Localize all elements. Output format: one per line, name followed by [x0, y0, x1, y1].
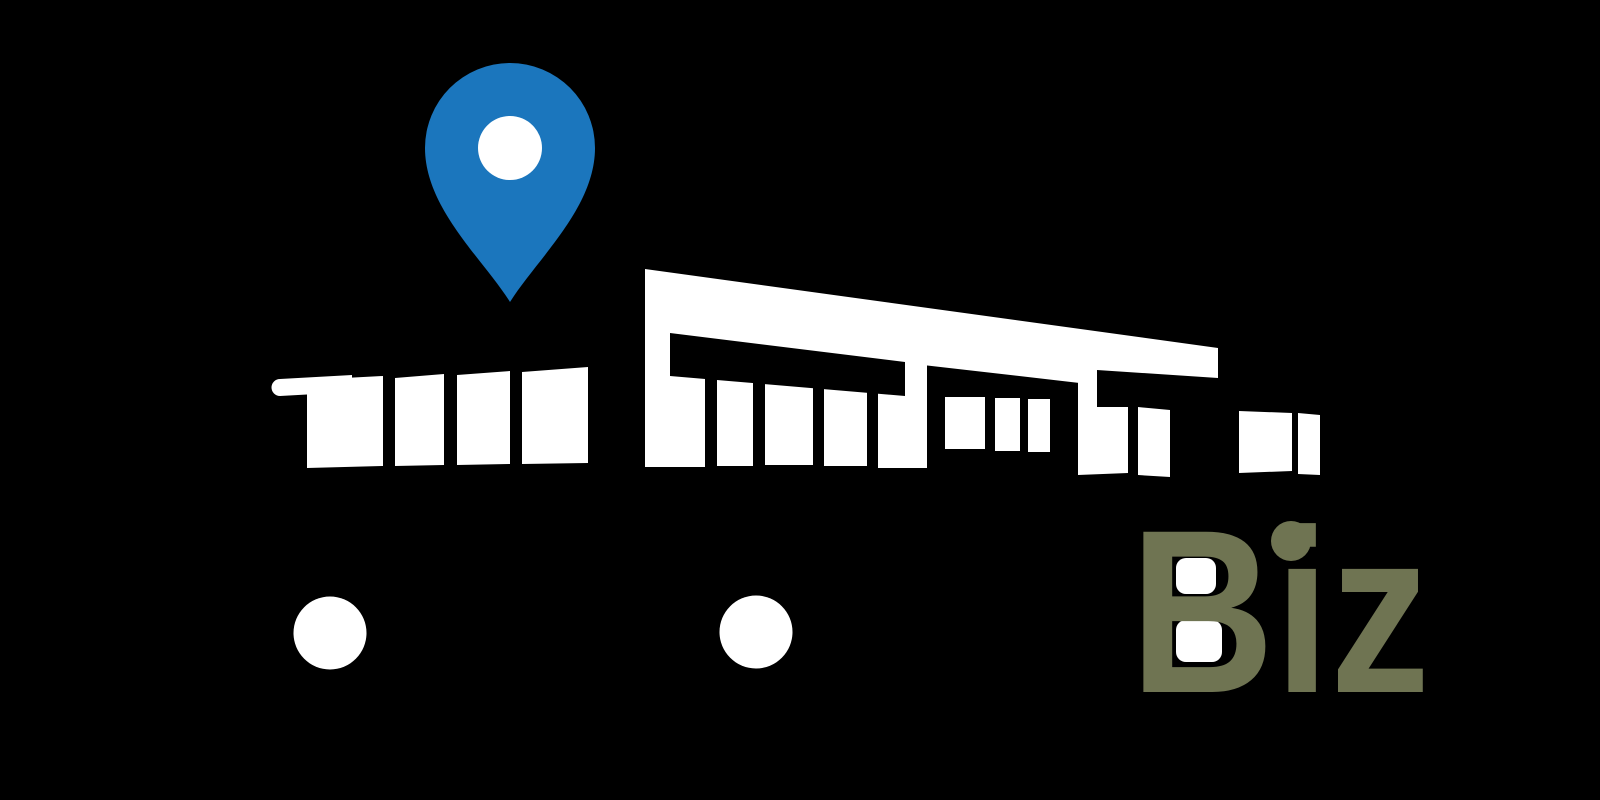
wing-panel: [1298, 413, 1320, 475]
i-dot: [1271, 521, 1311, 561]
pin-center-dot: [478, 116, 542, 180]
wing-panel: [1239, 411, 1292, 473]
window-pane: [1028, 399, 1050, 452]
wheel-dot-right: [720, 596, 793, 669]
wheel-dot-left: [294, 597, 367, 670]
building-panel: [395, 374, 444, 466]
building-panel: [457, 371, 510, 465]
brand-text: Biz: [1130, 482, 1430, 742]
logo-canvas: Biz: [0, 0, 1600, 800]
building-panel: [307, 376, 383, 468]
brand-wordmark: Biz: [1130, 482, 1430, 742]
wing-panel: [1138, 407, 1170, 477]
window-pane: [995, 398, 1020, 451]
logo-graphic: Biz: [0, 0, 1600, 800]
building-panel: [522, 367, 588, 464]
window-pane: [945, 397, 985, 449]
